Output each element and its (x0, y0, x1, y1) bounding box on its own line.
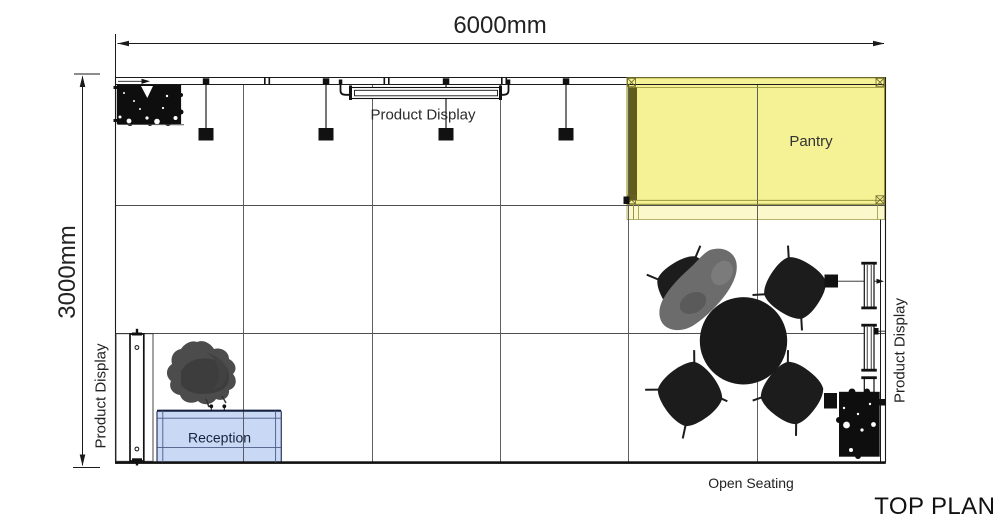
svg-text:3000mm: 3000mm (54, 225, 81, 318)
svg-text:Reception: Reception (188, 430, 251, 446)
svg-text:Product Display: Product Display (93, 343, 110, 449)
svg-text:6000mm: 6000mm (453, 12, 546, 39)
svg-text:Product Display: Product Display (370, 107, 476, 124)
svg-text:Product Display: Product Display (892, 297, 909, 403)
svg-text:Open Seating: Open Seating (708, 475, 794, 491)
svg-text:Pantry: Pantry (789, 133, 833, 150)
svg-text:TOP PLAN: TOP PLAN (874, 493, 995, 520)
